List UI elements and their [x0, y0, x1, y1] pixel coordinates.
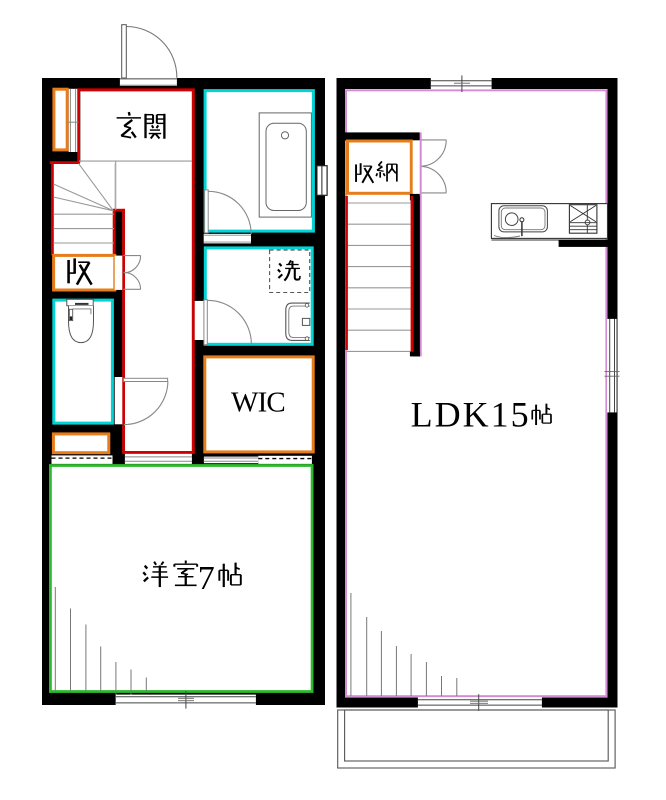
svg-text:WIC: WIC: [231, 387, 285, 419]
svg-text:LDK15: LDK15: [411, 395, 531, 435]
svg-text:7: 7: [198, 560, 215, 597]
